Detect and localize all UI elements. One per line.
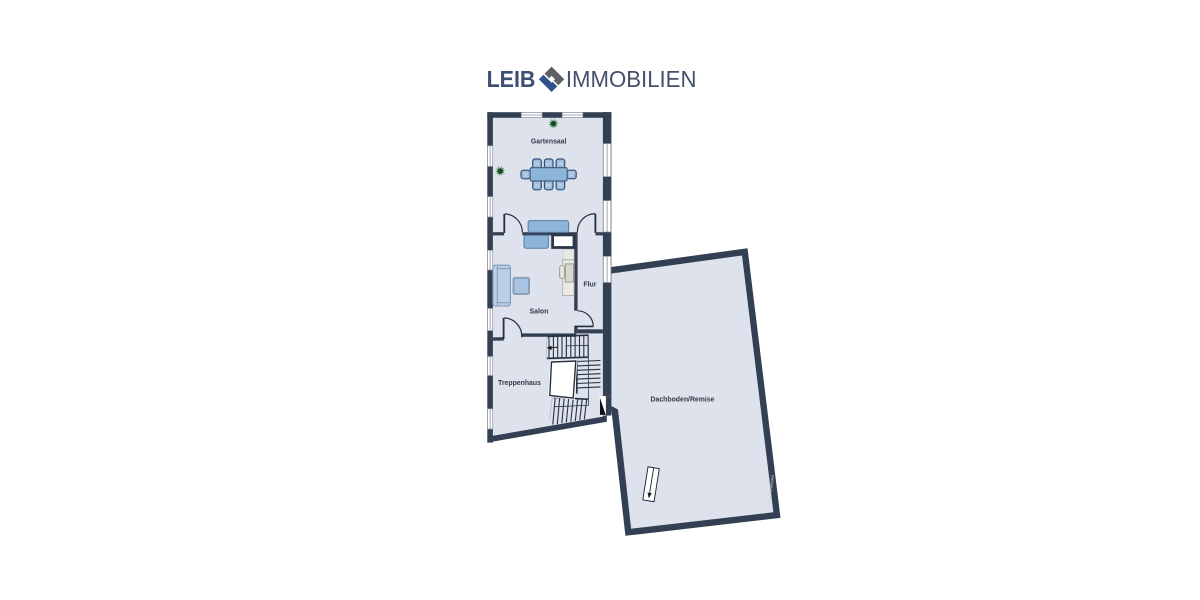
svg-text:Flur: Flur bbox=[583, 282, 596, 289]
svg-text:Salon: Salon bbox=[530, 308, 549, 315]
svg-text:IMMOBILIEN: IMMOBILIEN bbox=[566, 66, 697, 92]
svg-text:Gartensaal: Gartensaal bbox=[531, 138, 567, 145]
svg-text:Treppenhaus: Treppenhaus bbox=[498, 380, 541, 387]
svg-text:Dachboden/Remise: Dachboden/Remise bbox=[651, 397, 715, 404]
svg-text:LEIB: LEIB bbox=[487, 66, 536, 92]
